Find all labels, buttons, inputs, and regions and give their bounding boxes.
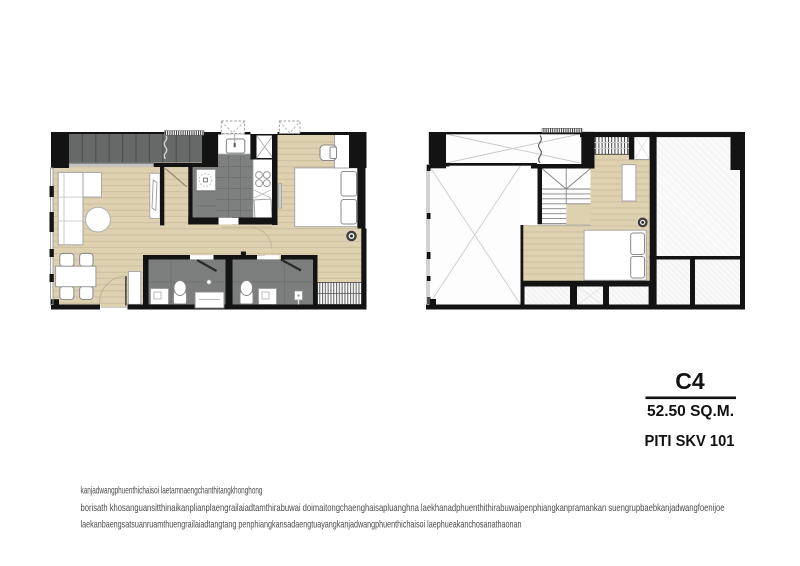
svg-text:52.50 SQ.M.: 52.50 SQ.M.: [647, 403, 734, 420]
svg-text:PITI SKV 101: PITI SKV 101: [645, 433, 735, 450]
svg-text:C4: C4: [675, 368, 705, 394]
svg-text:kanjadwangphuenthichaisoi laet: kanjadwangphuenthichaisoi laetamnaengcha…: [81, 485, 263, 497]
svg-text:borisath khosanguansitthinaika: borisath khosanguansitthinaikanplianplae…: [81, 502, 725, 514]
svg-text:laekanbaengsatsuanruamthuengra: laekanbaengsatsuanruamthuengrailaiadtang…: [81, 519, 522, 531]
